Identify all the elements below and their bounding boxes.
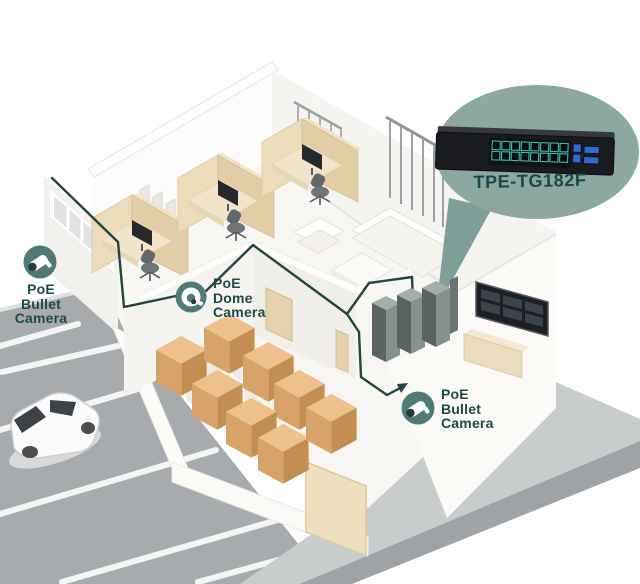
switch-port: [573, 154, 581, 163]
switch-port: [530, 153, 538, 162]
switch-port: [550, 153, 558, 162]
poe-camera-install-diagram: PoE Bullet Camera PoE Dome Camera PoE Bu…: [0, 0, 640, 584]
switch-port: [584, 146, 599, 154]
switch-port: [560, 154, 568, 163]
switch-port: [511, 152, 519, 161]
camera-label-dome: PoE Dome Camera: [213, 276, 303, 320]
switch-port: [573, 144, 581, 153]
poe-dome-camera-badge: [176, 282, 207, 313]
switch-model-label: TPE-TG182F: [444, 169, 616, 194]
poe-bullet-camera-badge-left: [24, 246, 57, 279]
camera-label-left: PoE Bullet Camera: [2, 282, 80, 326]
switch-port: [521, 152, 529, 161]
switch-port: [492, 151, 500, 160]
camera-label-right: PoE Bullet Camera: [441, 387, 531, 431]
switch-port: [511, 142, 519, 151]
switch-port: [501, 152, 509, 161]
switch-port: [560, 143, 568, 152]
switch-port: [531, 142, 539, 151]
switch-port: [584, 157, 599, 165]
server-rack: [422, 281, 450, 347]
poe-bullet-camera-badge-right: [402, 392, 435, 425]
isometric-building-illustration: [0, 0, 640, 584]
switch-port: [492, 141, 500, 150]
switch-port: [541, 143, 549, 152]
server-rack: [372, 296, 400, 362]
switch-port: [502, 141, 510, 150]
interior-door-small: [336, 330, 348, 372]
switch-port: [540, 153, 548, 162]
switch-port: [521, 142, 529, 151]
poe-switch: [435, 126, 614, 175]
switch-port: [550, 143, 558, 152]
server-rack: [397, 288, 425, 354]
